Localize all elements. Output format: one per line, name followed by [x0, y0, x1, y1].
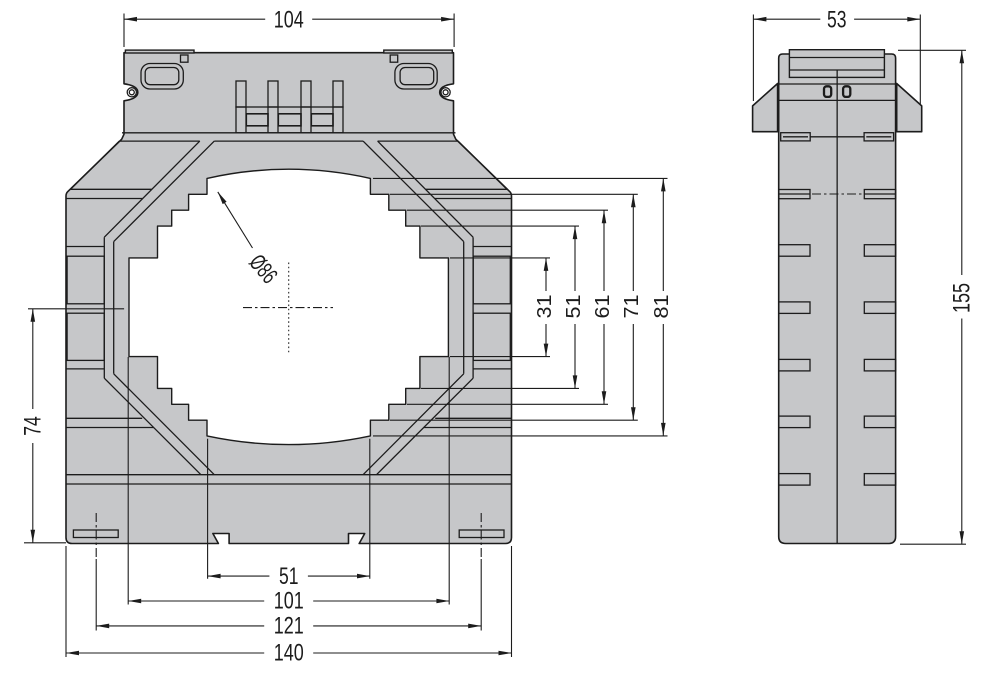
svg-text:74: 74 [20, 416, 47, 436]
svg-text:61: 61 [592, 295, 614, 319]
svg-text:121: 121 [274, 613, 304, 640]
svg-text:71: 71 [621, 295, 643, 319]
svg-text:81: 81 [651, 295, 673, 319]
svg-text:51: 51 [563, 295, 585, 319]
svg-text:53: 53 [827, 7, 847, 34]
svg-text:140: 140 [274, 640, 304, 667]
svg-text:104: 104 [274, 7, 304, 34]
svg-text:155: 155 [949, 283, 976, 313]
svg-text:31: 31 [534, 295, 556, 319]
svg-text:101: 101 [274, 588, 304, 615]
svg-text:51: 51 [279, 563, 299, 590]
